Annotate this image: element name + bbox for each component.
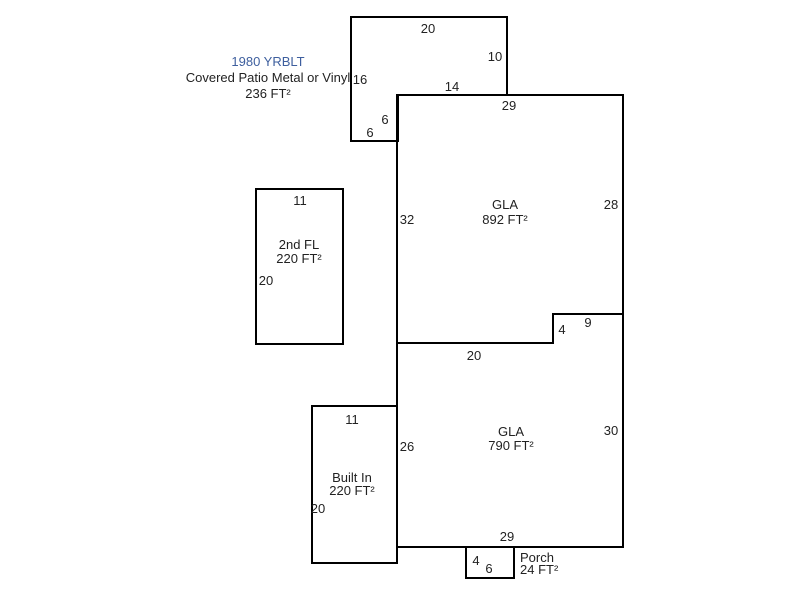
dim-porch-left: 4 (472, 554, 479, 568)
gla-upper-name: GLA (482, 197, 528, 212)
property-sketch: 1980 YRBLT Covered Patio Metal or Vinyl … (0, 0, 800, 600)
covered-patio-name: Covered Patio Metal or Vinyl (186, 70, 351, 86)
gla-lower-name: GLA (488, 425, 534, 439)
dim-covered-patio-inner: 14 (445, 80, 459, 94)
dim-gla-lower-right: 30 (604, 424, 618, 438)
second-floor-name: 2nd FL (276, 238, 322, 252)
dim-second-floor-top: 11 (293, 194, 307, 208)
gla-lower-label: GLA 790 FT² (488, 425, 534, 453)
dim-gla-upper-bottom: 20 (467, 349, 481, 363)
dim-gla-upper-step-h: 9 (584, 316, 591, 330)
yrblt-label: 1980 YRBLT (186, 54, 351, 70)
built-in-area: 220 FT² (329, 484, 375, 497)
built-in-label: Built In 220 FT² (329, 471, 375, 497)
gla-upper-label: GLA 892 FT² (482, 197, 528, 227)
dim-second-floor-left: 20 (259, 274, 273, 288)
dim-porch-bottom: 6 (485, 562, 492, 576)
dim-covered-patio-step-h: 6 (366, 126, 373, 140)
dim-built-in-top: 11 (345, 413, 359, 427)
dim-covered-patio-right: 10 (488, 50, 502, 64)
dim-gla-upper-top: 29 (502, 99, 516, 113)
covered-patio-area: 236 FT² (186, 86, 351, 102)
gla-lower-area: 790 FT² (488, 439, 534, 453)
dim-gla-lower-left: 26 (400, 440, 414, 454)
dim-gla-upper-right: 28 (604, 198, 618, 212)
covered-patio-label: 1980 YRBLT Covered Patio Metal or Vinyl … (186, 54, 351, 102)
second-floor-label: 2nd FL 220 FT² (276, 238, 322, 266)
dim-covered-patio-left: 16 (353, 73, 367, 87)
dim-covered-patio-step-v: 6 (381, 113, 388, 127)
dim-built-in-left: 20 (311, 502, 325, 516)
dim-covered-patio-top: 20 (421, 22, 435, 36)
sketch-canvas (0, 0, 800, 600)
gla-upper-area: 892 FT² (482, 212, 528, 227)
porch-label: Porch 24 FT² (520, 552, 558, 576)
second-floor-outline (256, 189, 343, 344)
porch-area: 24 FT² (520, 564, 558, 576)
second-floor-area: 220 FT² (276, 252, 322, 266)
dim-gla-lower-bottom: 29 (500, 530, 514, 544)
dim-gla-upper-left: 32 (400, 213, 414, 227)
dim-gla-upper-step-v: 4 (558, 323, 565, 337)
